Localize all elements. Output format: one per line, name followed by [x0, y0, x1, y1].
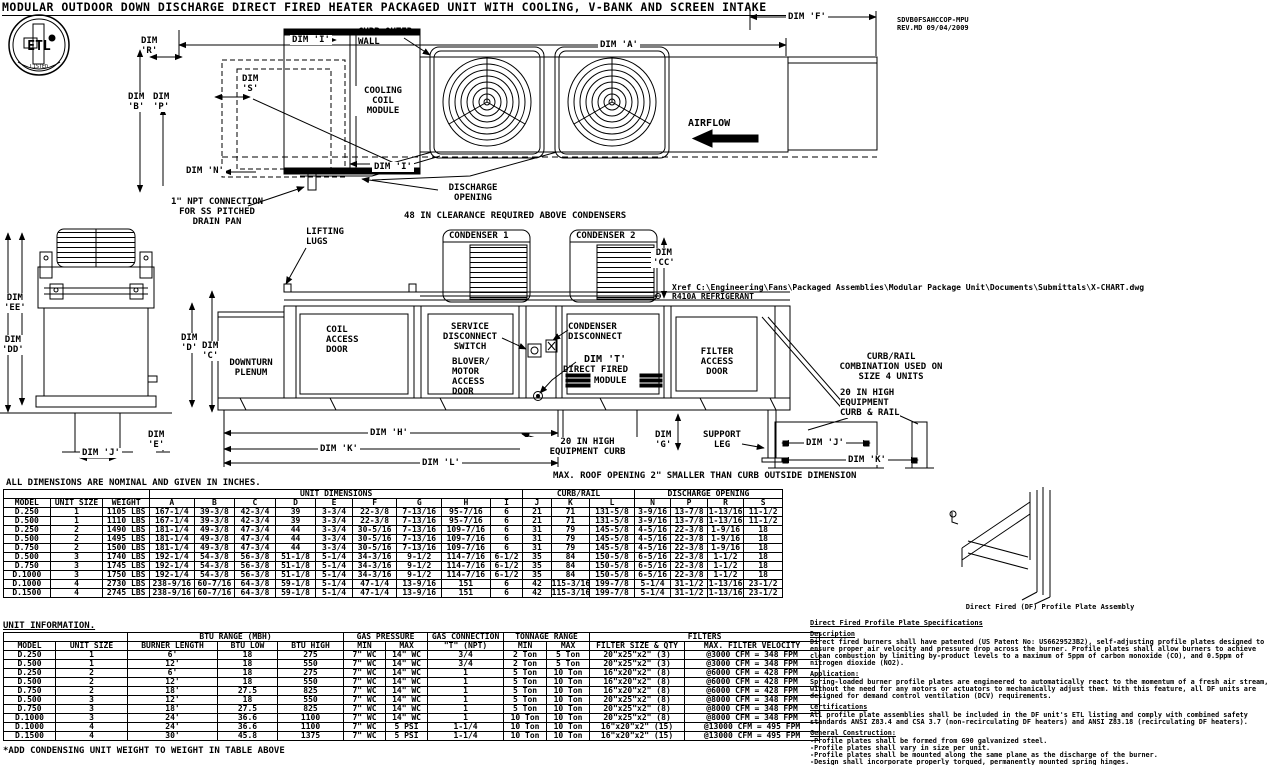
table-cell: 145-5/8 — [590, 535, 635, 544]
table-cell: 71 — [551, 508, 590, 517]
table-cell: 35 — [523, 553, 551, 562]
table-cell: 18 — [218, 669, 278, 678]
table-cell: 192-1/4 — [150, 562, 195, 571]
table-cell: 550 — [278, 660, 344, 669]
table-cell: 4-5/16 — [634, 526, 671, 535]
table-cell: @8000 CFM = 348 FPM — [685, 705, 820, 714]
table-cell: 12' — [128, 696, 218, 705]
table-cell: 5-1/4 — [634, 580, 671, 589]
dim-dd-label: DIM 'DD' — [0, 335, 26, 355]
table-cell: 30-5/16 — [352, 526, 397, 535]
table-group-header: FILTERS — [590, 633, 820, 642]
table-cell: 51-1/8 — [275, 571, 316, 580]
table-cell: 131-5/8 — [590, 508, 635, 517]
table-cell: 16"x20"x2" (8) — [590, 678, 685, 687]
table-column-header: MODEL — [4, 642, 56, 651]
spec-section-body: Direct fired burners shall have patented… — [810, 639, 1278, 668]
etl-listed-text: LISTED — [30, 64, 48, 70]
table-cell: 7" WC — [344, 687, 386, 696]
table-cell: 79 — [551, 544, 590, 553]
table-cell: 5 Ton — [504, 705, 547, 714]
table-cell: 9-1/2 — [397, 553, 442, 562]
table-cell: 35 — [523, 562, 551, 571]
table-cell: 114-7/16 — [442, 553, 491, 562]
dim-t-label: DIM 'T' — [582, 355, 628, 365]
table-cell: 30' — [128, 732, 218, 741]
table-group-header: TONNAGE RANGE — [504, 633, 590, 642]
table-cell: 20"x25"x2" (8) — [590, 714, 685, 723]
table-cell: 18 — [744, 535, 783, 544]
table-cell: D.750 — [4, 544, 51, 553]
table-row: D.150042745 LBS238-9/1660-7/1664-3/859-1… — [4, 589, 783, 598]
table-cell: 6' — [128, 651, 218, 660]
table-cell: 181-1/4 — [150, 535, 195, 544]
table-cell: 5-1/4 — [316, 589, 353, 598]
table-cell: 2 — [50, 544, 103, 553]
dim-g-label: DIM 'G' — [653, 430, 673, 450]
dim-r-label: DIM 'R' — [141, 36, 157, 56]
condenser-disconnect-label: CONDENSER DISCONNECT — [568, 322, 622, 342]
table-cell: 7-13/16 — [397, 535, 442, 544]
table-cell: 10 Ton — [504, 714, 547, 723]
table-cell: 2 — [50, 526, 103, 535]
table-cell: 7" WC — [344, 678, 386, 687]
table-row: D.500212'185507" WC14" WC15 Ton10 Ton16"… — [4, 678, 820, 687]
table-cell: 47-3/4 — [235, 535, 276, 544]
table-cell: 114-7/16 — [442, 571, 491, 580]
table-cell: 14" WC — [386, 669, 428, 678]
table-cell: @3000 CFM = 348 FPM — [685, 660, 820, 669]
airflow-arrow-icon — [693, 130, 758, 147]
table-row: D.750318'27.58257" WC14" WC15 Ton10 Ton2… — [4, 705, 820, 714]
table-group-header: BTU RANGE (MBH) — [128, 633, 344, 642]
table-cell: 84 — [551, 553, 590, 562]
table-cell: 9-1/2 — [397, 562, 442, 571]
table-cell: 199-7/8 — [590, 580, 635, 589]
table-column-header: BTU LOW — [218, 642, 278, 651]
unit-dimensions-table: UNIT DIMENSIONSCURB/RAILDISCHARGE OPENIN… — [3, 489, 783, 598]
table-cell: @8000 CFM = 348 FPM — [685, 696, 820, 705]
roof-opening-note: MAX. ROOF OPENING 2" SMALLER THAN CURB O… — [553, 471, 856, 481]
table-column-header: F — [352, 499, 397, 508]
table-cell: 23-1/2 — [744, 580, 783, 589]
table-cell: D.500 — [4, 696, 56, 705]
table-cell: 10 Ton — [547, 723, 590, 732]
table-cell: 238-9/16 — [150, 589, 195, 598]
table-cell: 6-1/2 — [490, 571, 523, 580]
curb-rail-combo-note: CURB/RAIL COMBINATION USED ON SIZE 4 UNI… — [835, 352, 947, 382]
table-cell: 11-1/2 — [744, 517, 783, 526]
table-cell: 64-3/8 — [235, 580, 276, 589]
table-cell: 1100 — [278, 723, 344, 732]
document-reference: SDVB0FSAHCCOP-MPU REV.MD 09/04/2009 — [897, 16, 969, 32]
dimensions-note: ALL DIMENSIONS ARE NOMINAL AND GIVEN IN … — [6, 478, 261, 488]
table-cell: D.250 — [4, 508, 51, 517]
table-column-header: BURNER LENGTH — [128, 642, 218, 651]
table-cell: 6-5/16 — [634, 571, 671, 580]
dim-cc-label: DIM 'CC' — [651, 248, 677, 268]
table-cell: 42 — [523, 580, 551, 589]
dim-h-label: DIM 'H' — [368, 428, 410, 438]
dim-a-label: DIM 'A' — [598, 40, 640, 50]
table-cell: 39-3/8 — [194, 517, 235, 526]
table-cell: 59-1/8 — [275, 580, 316, 589]
table-cell: D.1500 — [4, 732, 56, 741]
table-cell: 31 — [523, 544, 551, 553]
table-cell: 1-1/2 — [707, 553, 744, 562]
table-cell: 22-3/8 — [352, 517, 397, 526]
table-cell: 1-13/16 — [707, 517, 744, 526]
table-cell: @8000 CFM = 348 FPM — [685, 714, 820, 723]
table-cell: 109-7/16 — [442, 526, 491, 535]
table-cell: 145-5/8 — [590, 526, 635, 535]
table-cell: 35 — [523, 571, 551, 580]
refrigerant-label: R410A REFRIGERANT — [672, 292, 754, 301]
table-cell: D.500 — [4, 517, 51, 526]
table-cell: 1105 LBS — [103, 508, 150, 517]
table-row: D.75031745 LBS192-1/454-3/856-3/851-1/85… — [4, 562, 783, 571]
table-cell: 54-3/8 — [194, 562, 235, 571]
dim-n-label: DIM 'N' — [184, 166, 226, 176]
table-cell: D.250 — [4, 651, 56, 660]
table-cell: 21 — [523, 517, 551, 526]
table-cell: 3-9/16 — [634, 517, 671, 526]
table-group-header: CURB/RAIL — [523, 490, 635, 499]
table-column-header: C — [235, 499, 276, 508]
table-cell: @13000 CFM = 495 FPM — [685, 723, 820, 732]
table-cell: 18 — [744, 553, 783, 562]
table-column-header: N — [634, 499, 671, 508]
table-column-header: R — [707, 499, 744, 508]
table-row: D.25026'182757" WC14" WC15 Ton10 Ton16"x… — [4, 669, 820, 678]
profile-plate-assembly-drawing — [950, 487, 1050, 604]
table-column-header: D — [275, 499, 316, 508]
table-cell: 5-1/4 — [634, 589, 671, 598]
support-leg-label: SUPPORT LEG — [700, 430, 744, 450]
table-cell: 47-1/4 — [352, 589, 397, 598]
table-cell: 49-3/8 — [194, 526, 235, 535]
table-cell: D.1000 — [4, 714, 56, 723]
dim-k-label: DIM 'K' — [318, 444, 360, 454]
table-cell: 7" WC — [344, 705, 386, 714]
top-plan-view — [140, 11, 877, 206]
profile-plate-specifications: Direct Fired Profile Plate Specification… — [810, 619, 1278, 765]
table-cell: 7-13/16 — [397, 517, 442, 526]
table-cell: 199-7/8 — [590, 589, 635, 598]
table-cell: 7-13/16 — [397, 508, 442, 517]
table-cell: 44 — [275, 535, 316, 544]
condenser-fan-icon — [430, 47, 544, 158]
direct-fired-label: DIRECT FIRED — [563, 365, 628, 375]
table-column-header: FILTER SIZE & QTY — [590, 642, 685, 651]
table-cell: 12' — [128, 678, 218, 687]
table-cell: 16"x20"x2" (8) — [590, 687, 685, 696]
table-cell: 1740 LBS — [103, 553, 150, 562]
xref-path: Xref C:\Engineering\Fans\Packaged Assemb… — [672, 283, 1144, 292]
table-cell: 4 — [56, 732, 128, 741]
table-cell: 1 — [428, 687, 504, 696]
table-group-header: GAS PRESSURE — [344, 633, 428, 642]
table-cell: 7" WC — [344, 669, 386, 678]
table-cell: 49-3/8 — [194, 535, 235, 544]
table-cell: 22-3/8 — [671, 535, 708, 544]
table-cell: 1-1/4 — [428, 732, 504, 741]
table-cell: 7" WC — [344, 660, 386, 669]
table-cell: 16"x20"x2" (15) — [590, 723, 685, 732]
dim-f-label: DIM 'F' — [786, 12, 828, 22]
table-cell: 238-9/16 — [150, 580, 195, 589]
table-cell: 18 — [744, 544, 783, 553]
blower-motor-access-label: BLOVER/ MOTOR ACCESS DOOR — [452, 357, 490, 397]
table-cell: 56-3/8 — [235, 562, 276, 571]
table-cell: 4-5/16 — [634, 544, 671, 553]
table-cell: 39 — [275, 517, 316, 526]
table-cell: 1110 LBS — [103, 517, 150, 526]
dim-ee-label: DIM 'EE' — [2, 293, 28, 313]
table-cell: 10 Ton — [547, 687, 590, 696]
table-cell: 27.5 — [218, 687, 278, 696]
unit-information-table: BTU RANGE (MBH)GAS PRESSUREGAS CONNECTIO… — [3, 632, 805, 741]
table-cell: 4 — [50, 589, 103, 598]
table-column-header: MIN — [344, 642, 386, 651]
table-cell: 13-9/16 — [397, 580, 442, 589]
table-cell: 24' — [128, 723, 218, 732]
table-cell: 3 — [56, 705, 128, 714]
table-cell: 14" WC — [386, 678, 428, 687]
table-cell: 2 — [50, 535, 103, 544]
spec-section-body: Spring-loaded burner profile plates are … — [810, 679, 1278, 701]
table-cell: 31-1/2 — [671, 580, 708, 589]
spec-section-body: All profile plate assemblies shall be in… — [810, 712, 1278, 726]
table-cell: 22-3/8 — [671, 553, 708, 562]
table-cell: 13-7/8 — [671, 508, 708, 517]
table-group-header: UNIT DIMENSIONS — [150, 490, 523, 499]
table-cell: 14" WC — [386, 714, 428, 723]
table-column-header: P — [671, 499, 708, 508]
table-cell: 79 — [551, 535, 590, 544]
table-cell: 6' — [128, 669, 218, 678]
table-cell: 95-7/16 — [442, 508, 491, 517]
table-cell: 13-9/16 — [397, 589, 442, 598]
table-cell: D.1500 — [4, 589, 51, 598]
table-cell: 36.6 — [218, 714, 278, 723]
table-column-header: MODEL — [4, 499, 51, 508]
table-cell: 14" WC — [386, 660, 428, 669]
table-cell: 115-3/16 — [551, 580, 590, 589]
table-cell: 54-3/8 — [194, 553, 235, 562]
coil-access-door-label: COIL ACCESS DOOR — [326, 325, 359, 355]
table-cell: 47-1/4 — [352, 580, 397, 589]
table-row: D.25016'182757" WC14" WC3/42 Ton5 Ton20"… — [4, 651, 820, 660]
table-cell: 1 — [56, 651, 128, 660]
table-cell: 22-3/8 — [671, 544, 708, 553]
table-cell: D.1000 — [4, 580, 51, 589]
table-cell: @6000 CFM = 428 FPM — [685, 687, 820, 696]
table-cell: 109-7/16 — [442, 544, 491, 553]
table-cell: 84 — [551, 571, 590, 580]
table-cell: 5-1/4 — [316, 580, 353, 589]
table-cell: 54-3/8 — [194, 571, 235, 580]
table-cell: 18' — [128, 687, 218, 696]
table-cell: 6 — [490, 544, 523, 553]
table-cell: 4-5/16 — [634, 535, 671, 544]
airflow-label: AIRFLOW — [688, 119, 730, 129]
table-cell: 16"x20"x2" (15) — [590, 732, 685, 741]
table-column-header: BTU HIGH — [278, 642, 344, 651]
table-cell: 1 — [56, 660, 128, 669]
table-cell: 1-1/2 — [707, 571, 744, 580]
table-cell: 71 — [551, 517, 590, 526]
table-cell: 3 — [56, 696, 128, 705]
table-cell: 18 — [744, 562, 783, 571]
table-cell: 1 — [50, 508, 103, 517]
table-cell: 14" WC — [386, 696, 428, 705]
table-cell: 1-9/16 — [707, 535, 744, 544]
table-cell: 550 — [278, 696, 344, 705]
table-cell: 3-3/4 — [316, 517, 353, 526]
table-cell: 34-3/16 — [352, 571, 397, 580]
table-cell: 34-3/16 — [352, 553, 397, 562]
table-cell: 1-13/16 — [707, 589, 744, 598]
table-cell: 10 Ton — [547, 705, 590, 714]
condenser2-label: CONDENSER 2 — [576, 231, 636, 241]
table-cell: 6-1/2 — [490, 562, 523, 571]
table-cell: 23-1/2 — [744, 589, 783, 598]
table-cell: 1 — [428, 669, 504, 678]
table-cell: 5-1/4 — [316, 553, 353, 562]
table-cell: 5 Ton — [504, 687, 547, 696]
table-cell: 6 — [490, 535, 523, 544]
table-cell: 150-5/8 — [590, 553, 635, 562]
table-column-header: A — [150, 499, 195, 508]
table-cell: 44 — [275, 544, 316, 553]
table-cell: 2745 LBS — [103, 589, 150, 598]
table-cell: 42-3/4 — [235, 508, 276, 517]
table-cell: 1 — [428, 705, 504, 714]
table-row: D.25021490 LBS181-1/449-3/847-3/4443-3/4… — [4, 526, 783, 535]
table-cell: 4 — [56, 723, 128, 732]
table-cell: D.500 — [4, 678, 56, 687]
table-cell: 1 — [428, 696, 504, 705]
unit-information-title: UNIT INFORMATION. — [3, 621, 95, 631]
table-cell: 36.6 — [218, 723, 278, 732]
table-column-header: L — [590, 499, 635, 508]
table-cell: 56-3/8 — [235, 553, 276, 562]
table-cell: 151 — [442, 580, 491, 589]
table-cell: 2 Ton — [504, 651, 547, 660]
table-cell: @6000 CFM = 428 FPM — [685, 678, 820, 687]
table-column-header: B — [194, 499, 235, 508]
table-cell: 550 — [278, 678, 344, 687]
table-cell: 5 Ton — [504, 669, 547, 678]
table-cell: 2 — [56, 678, 128, 687]
table-cell: 22-3/8 — [671, 571, 708, 580]
table-cell: 18 — [218, 696, 278, 705]
table-cell: 30-5/16 — [352, 544, 397, 553]
table-cell: 167-1/4 — [150, 508, 195, 517]
npt-connection-note: 1" NPT CONNECTION FOR SS PITCHED DRAIN P… — [152, 197, 282, 227]
table-cell: D.750 — [4, 687, 56, 696]
table-cell: 3-3/4 — [316, 508, 353, 517]
table-cell: 18' — [128, 705, 218, 714]
direct-fired-module-label: MODULE — [592, 376, 629, 386]
table-row: D.1000424'36.611007" WC5 PSI1-1/410 Ton1… — [4, 723, 820, 732]
table-cell: 7" WC — [344, 714, 386, 723]
table-cell: 1100 — [278, 714, 344, 723]
table-cell: D.500 — [4, 553, 51, 562]
table-cell: 44 — [275, 526, 316, 535]
table-cell: 825 — [278, 687, 344, 696]
table-cell: 1-13/16 — [707, 580, 744, 589]
table-cell: 1-13/16 — [707, 508, 744, 517]
table-cell: 275 — [278, 651, 344, 660]
table-cell: 1-1/2 — [707, 562, 744, 571]
table-row: D.500112'185507" WC14" WC3/42 Ton5 Ton20… — [4, 660, 820, 669]
table-cell: @13000 CFM = 495 FPM — [685, 732, 820, 741]
dim-p-label: DIM 'P' — [151, 92, 171, 112]
table-cell: 10 Ton — [504, 732, 547, 741]
table-cell: 7-13/16 — [397, 544, 442, 553]
table-cell: 5-1/4 — [316, 571, 353, 580]
table-cell: 151 — [442, 589, 491, 598]
table-row: D.50021495 LBS181-1/449-3/847-3/4443-3/4… — [4, 535, 783, 544]
table-cell: 39 — [275, 508, 316, 517]
specs-title: Direct Fired Profile Plate Specification… — [810, 619, 1278, 627]
table-cell: 14" WC — [386, 651, 428, 660]
table-cell: 3-9/16 — [634, 508, 671, 517]
table-cell: 150-5/8 — [590, 562, 635, 571]
table-cell: 3-3/4 — [316, 535, 353, 544]
table-cell: 3 — [50, 553, 103, 562]
table-cell: 9-1/2 — [397, 571, 442, 580]
dim-k-right-label: DIM 'K' — [846, 455, 888, 465]
table-cell: 1490 LBS — [103, 526, 150, 535]
curb-outer-wall-label: CURB OUTER WALL — [358, 27, 412, 47]
table-cell: 60-7/16 — [194, 580, 235, 589]
table-cell: 18 — [744, 526, 783, 535]
table-cell: 31 — [523, 526, 551, 535]
table-cell: 6 — [490, 526, 523, 535]
table-row: D.750218'27.58257" WC14" WC15 Ton10 Ton1… — [4, 687, 820, 696]
table-column-header: S — [744, 499, 783, 508]
table-cell: 3/4 — [428, 651, 504, 660]
table-cell: 34-3/16 — [352, 562, 397, 571]
table-cell: 1 — [428, 714, 504, 723]
table-cell: 10 Ton — [547, 714, 590, 723]
table-column-header: MAX. FILTER VELOCITY — [685, 642, 820, 651]
table-cell: 22-3/8 — [671, 562, 708, 571]
table-cell: 12' — [128, 660, 218, 669]
table-column-header: MIN — [504, 642, 547, 651]
table-cell: 1375 — [278, 732, 344, 741]
table-cell: 3 — [56, 714, 128, 723]
table-cell: 31-1/2 — [671, 589, 708, 598]
table-cell: 79 — [551, 526, 590, 535]
table-cell: 49-3/8 — [194, 544, 235, 553]
table-cell: 7" WC — [344, 651, 386, 660]
table-cell: 42 — [523, 589, 551, 598]
table-cell: 6 — [490, 517, 523, 526]
table-cell: 1 — [50, 517, 103, 526]
table-cell: 5 PSI — [386, 732, 428, 741]
table-cell: 20"x25"x2" (3) — [590, 660, 685, 669]
table-cell: 22-3/8 — [352, 508, 397, 517]
table-cell: D.250 — [4, 526, 51, 535]
table-cell: 6 — [490, 589, 523, 598]
table-group-header: DISCHARGE OPENING — [634, 490, 782, 499]
table-cell: 13-7/8 — [671, 517, 708, 526]
table-cell: 45.8 — [218, 732, 278, 741]
